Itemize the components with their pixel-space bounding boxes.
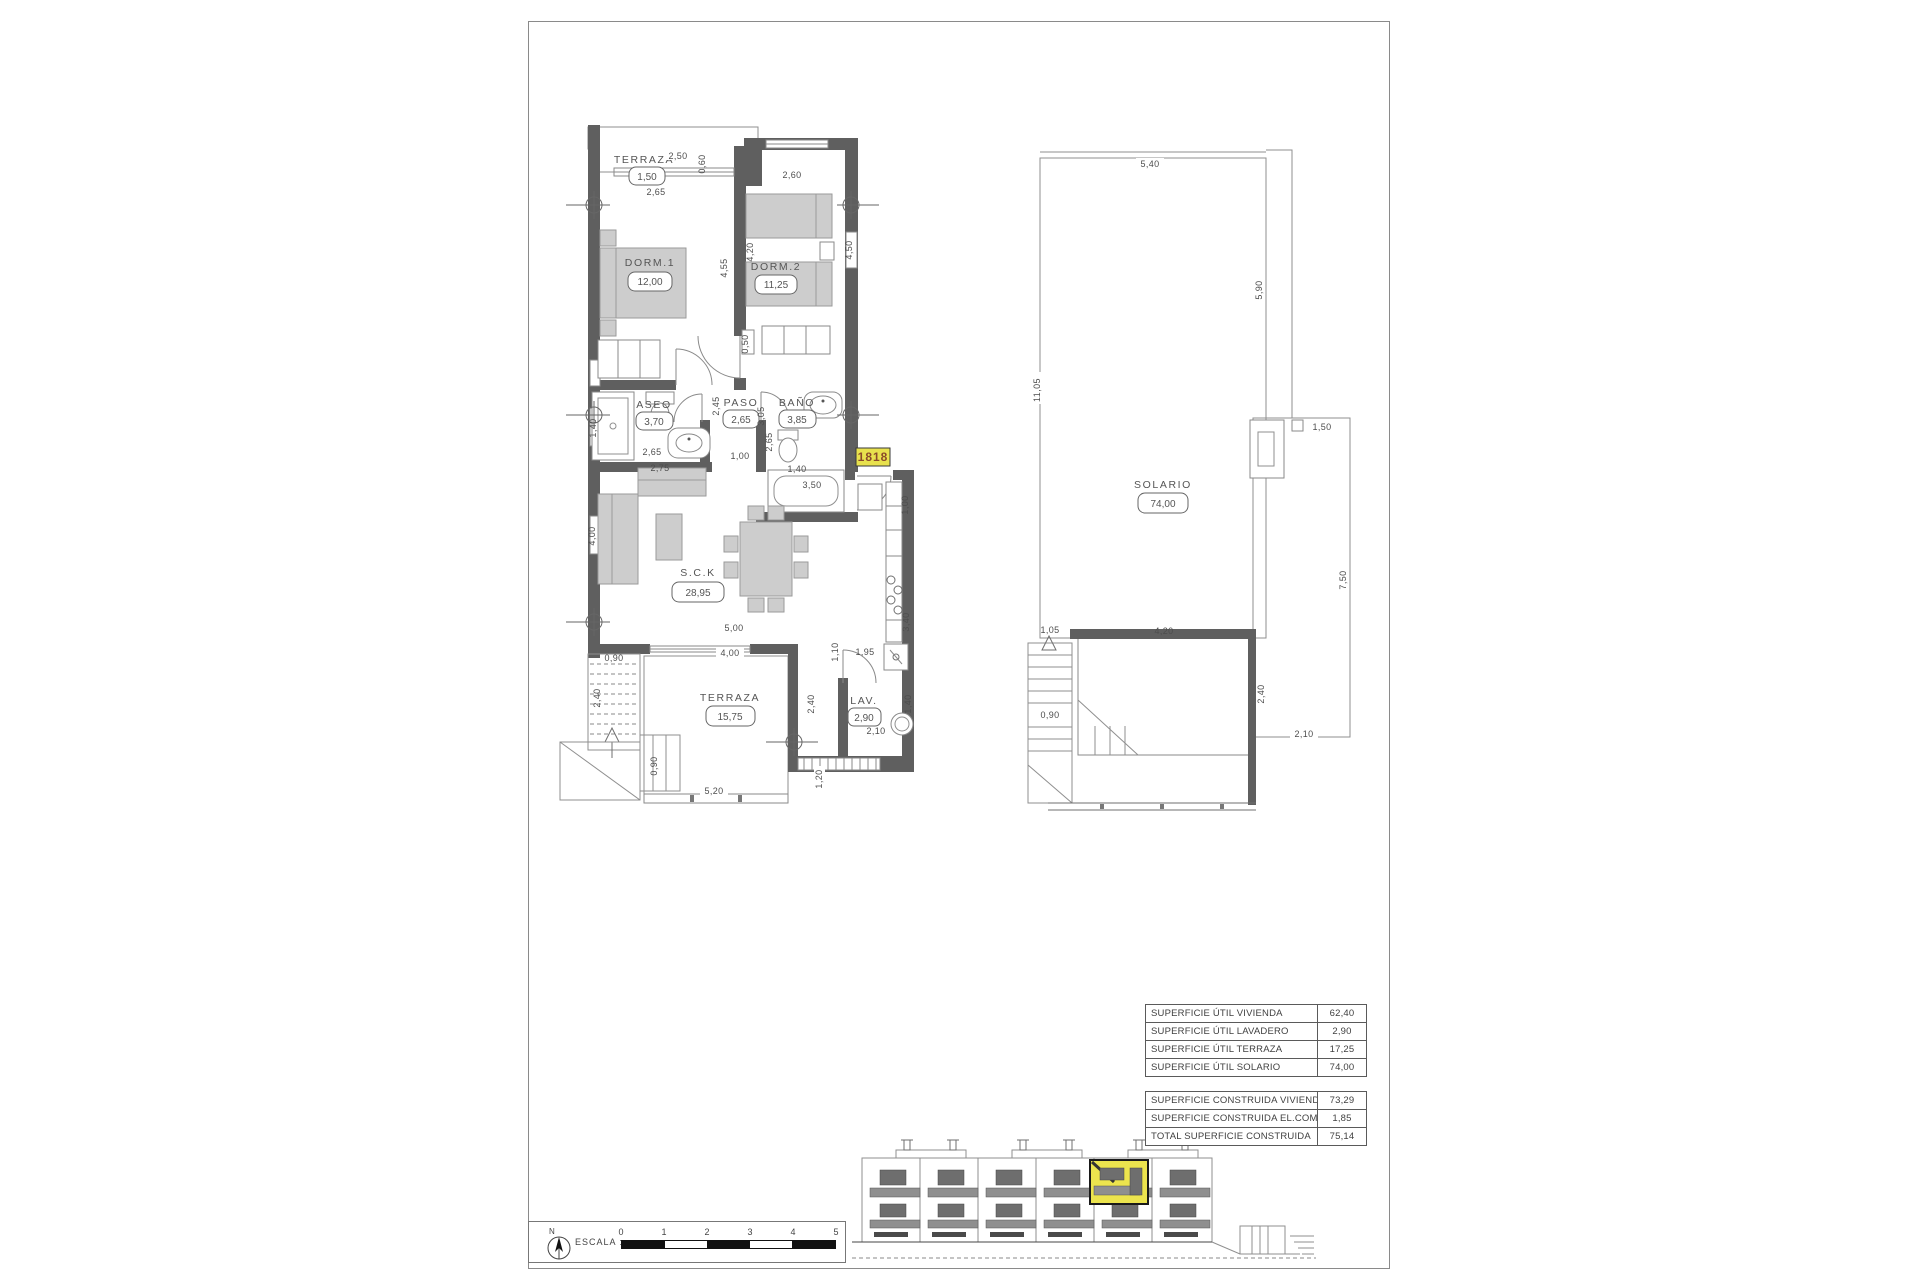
dim-bath: 1,40: [787, 464, 806, 474]
dim-kitchen-b: 1,95: [855, 647, 874, 657]
dim-hall: 1,00: [730, 451, 749, 461]
dim-sol-chimney: 1,50: [1312, 422, 1331, 432]
scale-tick: 2: [704, 1227, 709, 1237]
table-row: SUPERFICIE ÚTIL VIVIENDA 62,40: [1146, 1005, 1366, 1022]
room-dorm2: DORM.2: [751, 261, 801, 273]
table-row-label: SUPERFICIE ÚTIL TERRAZA: [1146, 1041, 1317, 1058]
dim-dorm2-h: 4,20: [745, 242, 755, 261]
dim-dorm1-h: 4,55: [719, 258, 729, 277]
dim-paso-b: 3,05: [756, 406, 766, 425]
dim-stairs-b: 0,90: [649, 756, 659, 775]
dim-sol-ext-h: 2,40: [1256, 684, 1266, 703]
area-paso: 2,65: [731, 415, 751, 426]
exterior-stairs: [560, 654, 680, 800]
area-terraza-top: 1,50: [637, 172, 657, 183]
scale-tick: 1: [661, 1227, 666, 1237]
area-dorm2: 11,25: [764, 280, 789, 291]
dim-sck-w: 5,00: [724, 623, 743, 633]
room-paso: PASO: [724, 397, 759, 409]
table-row: SUPERFICIE CONSTRUIDA VIVIENDA 73,29: [1146, 1092, 1366, 1109]
dim-paso-a: 2,45: [711, 396, 721, 415]
room-labels: TERRAZA 1,50 DORM.1 12,00 DORM.2 11,25 A…: [614, 154, 881, 726]
dim-terraza-d: 0,60: [697, 154, 707, 173]
dim-sol-left: 11,05: [1032, 378, 1042, 402]
table-row: SUPERFICIE ÚTIL SOLARIO 74,00: [1146, 1058, 1366, 1076]
dim-aseo-side: 1,40: [588, 418, 598, 437]
rail-post: [738, 795, 742, 802]
scale-tick: 0: [618, 1227, 623, 1237]
dim-sol-ext-w: 2,10: [1294, 729, 1313, 739]
table-row-value: 17,25: [1317, 1041, 1366, 1058]
dim-terraza-w: 2,50: [668, 151, 687, 161]
table-row-value: 62,40: [1317, 1005, 1366, 1022]
scale-tick: 3: [747, 1227, 752, 1237]
dim-terr-bottom: 5,20: [704, 786, 723, 796]
table-row-value: 74,00: [1317, 1059, 1366, 1076]
table-row: SUPERFICIE ÚTIL TERRAZA 17,25: [1146, 1040, 1366, 1058]
dim-stairs-w: 0,90: [604, 653, 623, 663]
title-scale-box: N ESCALA : 0 1 2 3 4 5: [528, 1221, 846, 1263]
scale-tick: 5: [833, 1227, 838, 1237]
table-row-label: SUPERFICIE ÚTIL VIVIENDA: [1146, 1005, 1317, 1022]
solario-plan: SOLARIO 74,00 5,40 5,90 11,05 1,50 7,50 …: [1028, 150, 1350, 810]
table-row-value: 75,14: [1317, 1128, 1366, 1145]
room-sck: S.C.K: [680, 567, 715, 579]
solario-deck-main: [1040, 158, 1266, 638]
table-superficie-construida: SUPERFICIE CONSTRUIDA VIVIENDA 73,29 SUP…: [1145, 1091, 1367, 1146]
table-row-value: 73,29: [1317, 1092, 1366, 1109]
table-row-value: 2,90: [1317, 1023, 1366, 1040]
highlighted-unit: [1090, 1160, 1148, 1204]
north-label: N: [549, 1227, 555, 1236]
room-terraza: TERRAZA: [700, 692, 760, 704]
room-dorm1: DORM.1: [625, 257, 675, 269]
area-dorm1: 12,00: [637, 277, 662, 288]
area-bano: 3,85: [787, 415, 807, 426]
dim-entry: 1,00: [900, 495, 910, 514]
rail-post: [690, 795, 694, 802]
room-lav: LAV.: [850, 695, 877, 707]
dim-lav-w: 2,10: [866, 726, 885, 736]
unit-tag: 1818: [858, 450, 889, 464]
elevation-bays: [870, 1170, 1210, 1237]
scale-tick: 4: [790, 1227, 795, 1237]
dim-kitchen-h: 3,40: [901, 612, 911, 631]
table-row-label: SUPERFICIE CONSTRUIDA VIVIENDA: [1146, 1092, 1317, 1109]
dim-bano-w: 3,50: [802, 480, 821, 490]
dim-aseo-w: 2,65: [642, 447, 661, 457]
dim-terraza-in: 2,65: [646, 187, 665, 197]
table-row-label: SUPERFICIE ÚTIL LAVADERO: [1146, 1023, 1317, 1040]
room-aseo: ASEO: [636, 399, 672, 411]
surface-tables: SUPERFICIE ÚTIL VIVIENDA 62,40 SUPERFICI…: [1145, 1004, 1367, 1160]
area-solario: 74,00: [1150, 499, 1175, 510]
area-aseo: 3,70: [644, 417, 664, 428]
dim-lav-h: 1,40: [903, 694, 913, 713]
plan-drawing: 1818 TERRAZA 1,50 DORM.1 12,00 DORM.2 11…: [0, 0, 1920, 1280]
dim-sol-right2: 7,50: [1338, 570, 1348, 589]
scale-label: ESCALA :: [575, 1237, 623, 1247]
area-terraza: 15,75: [717, 712, 742, 723]
dim-terr-h: 2,40: [806, 694, 816, 713]
dim-sol-void-w: 4,20: [1154, 626, 1173, 636]
dim-stairs-h: 2,40: [592, 688, 602, 707]
dim-sol-stairs: 0,90: [1040, 710, 1059, 720]
room-bano: BAÑO: [779, 396, 815, 409]
table-row: TOTAL SUPERFICIE CONSTRUIDA 75,14: [1146, 1127, 1366, 1145]
dim-sol-right: 5,90: [1254, 280, 1264, 299]
dim-dorm2-win: 4,50: [844, 240, 854, 259]
dim-sol-top: 5,40: [1140, 159, 1159, 169]
table-row-label: TOTAL SUPERFICIE CONSTRUIDA: [1146, 1128, 1317, 1145]
north-arrow-icon: N: [537, 1224, 577, 1262]
dim-sck-h: 4,00: [587, 526, 597, 545]
scale-bar: [621, 1240, 836, 1249]
dim-dorm2-w: 2,60: [782, 170, 801, 180]
dim-terr-edge: 1,20: [814, 769, 824, 788]
area-sck: 28,95: [685, 588, 710, 599]
dim-kitchen-a: 1,10: [830, 642, 840, 661]
dim-closet: 0,50: [740, 334, 750, 353]
area-lav: 2,90: [854, 713, 874, 724]
dim-sofa: 2,75: [650, 463, 669, 473]
dim-terr-w: 4,00: [720, 648, 739, 658]
dim-sol-stairs-top: 1,05: [1040, 625, 1059, 635]
solario-void: [1078, 638, 1250, 755]
table-row: SUPERFICIE ÚTIL LAVADERO 2,90: [1146, 1022, 1366, 1040]
table-row: SUPERFICIE CONSTRUIDA EL.COMUNES 1,85: [1146, 1109, 1366, 1127]
table-row-label: SUPERFICIE CONSTRUIDA EL.COMUNES: [1146, 1110, 1317, 1127]
table-row-label: SUPERFICIE ÚTIL SOLARIO: [1146, 1059, 1317, 1076]
dim-bano-side: 2,65: [764, 432, 774, 451]
room-solario: SOLARIO: [1134, 479, 1192, 491]
apartment-plan: 1818 TERRAZA 1,50 DORM.1 12,00 DORM.2 11…: [560, 125, 914, 803]
table-superficie-util: SUPERFICIE ÚTIL VIVIENDA 62,40 SUPERFICI…: [1145, 1004, 1367, 1077]
table-row-value: 1,85: [1317, 1110, 1366, 1127]
solario-chimney: [1250, 420, 1284, 478]
